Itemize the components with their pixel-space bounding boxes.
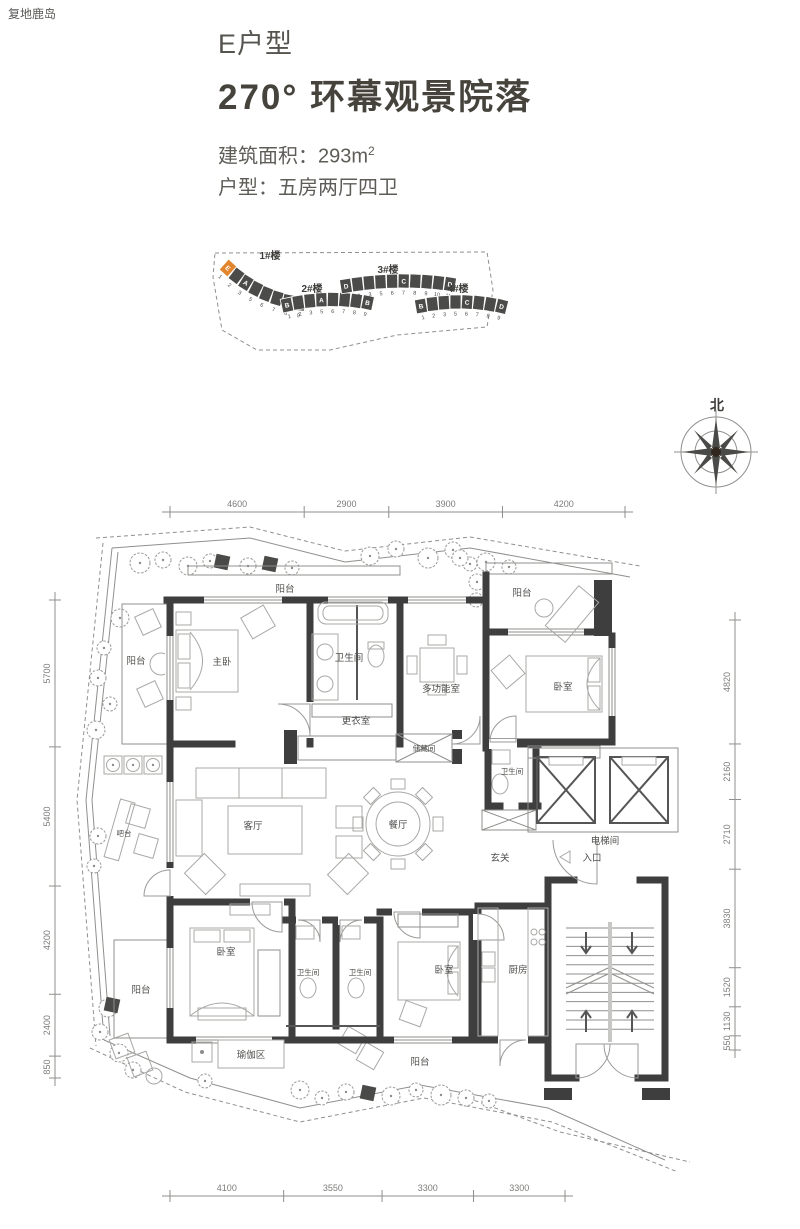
building-cell: 10 xyxy=(431,275,445,299)
cell-number: 1 xyxy=(287,314,291,321)
cell-letter: C xyxy=(464,299,469,306)
compass-rose xyxy=(674,410,758,494)
tree-icon xyxy=(482,1094,496,1108)
dim-label: 5700 xyxy=(42,663,52,683)
cell-number: 2 xyxy=(432,313,436,319)
cell-number: 6 xyxy=(391,291,394,297)
tree-icon xyxy=(92,1024,108,1040)
tree-icon xyxy=(198,1074,212,1088)
tree-icon xyxy=(315,1091,329,1105)
label-bath-b1: 卫生间 xyxy=(297,967,320,977)
dim-label: 3550 xyxy=(323,1183,343,1193)
building-cell: A5 xyxy=(316,293,328,316)
cell-number: 9 xyxy=(363,312,367,319)
cell-number: 5 xyxy=(379,291,382,297)
tree-icon xyxy=(111,609,129,627)
label-master-bedroom: 主卧 xyxy=(212,656,232,668)
label-living-room: 客厅 xyxy=(243,820,263,832)
label-dining-room: 餐厅 xyxy=(388,819,408,831)
cell-letter: C xyxy=(401,278,406,285)
building-cell: 7 xyxy=(471,295,485,319)
planter-icon xyxy=(124,756,142,774)
dimension-chain: 4100355033003300 xyxy=(162,1183,573,1202)
building-cell: C6 xyxy=(461,295,473,318)
tree-icon xyxy=(361,547,379,565)
label-balcony-bottom-left: 阳台 xyxy=(131,984,150,996)
cell-number: 7 xyxy=(271,307,276,314)
planter-dark-icon xyxy=(214,554,231,571)
building-cell: 6 xyxy=(386,274,397,297)
elevators xyxy=(528,748,678,832)
building-cell: 3 xyxy=(438,295,450,318)
building-cell: 2 xyxy=(426,296,440,320)
cell-number: 9 xyxy=(424,291,428,297)
label-elevator-hall: 电梯间 xyxy=(591,835,620,847)
building-cell: 5 xyxy=(450,295,461,318)
tree-icon xyxy=(90,670,106,686)
label-yoga-area: 瑜伽区 xyxy=(237,1049,266,1061)
planter-icon xyxy=(144,756,162,774)
planter-icon xyxy=(104,756,122,774)
outdoor-chair-icon xyxy=(134,834,159,859)
building-cell: C7 xyxy=(398,274,409,297)
cell-number: 7 xyxy=(402,290,405,296)
dimension-chain: 482021602710383015201130550 xyxy=(722,612,741,1058)
cell-number: 8 xyxy=(413,291,416,297)
cell-number: 5 xyxy=(320,309,323,315)
outdoor-chair-icon xyxy=(137,681,164,708)
dimension-chain: 4600290039004200 xyxy=(162,499,633,518)
cell-number: 7 xyxy=(475,312,479,318)
outdoor-chair-icon xyxy=(356,1042,383,1069)
dim-label: 5400 xyxy=(42,806,52,826)
label-storage-room: 储藏间 xyxy=(413,743,436,753)
tree-icon xyxy=(382,1087,400,1105)
dim-label: 3900 xyxy=(436,499,456,509)
dim-label: 4600 xyxy=(227,499,247,509)
cell-number: 8 xyxy=(486,313,490,319)
tree-icon xyxy=(285,561,299,575)
label-balcony-left: 阳台 xyxy=(126,655,145,667)
tree-icon xyxy=(431,1085,451,1105)
planter-dark-icon xyxy=(360,1085,377,1102)
label-bedroom-bottom-left: 卧室 xyxy=(216,946,235,958)
label-dressing-room: 更衣室 xyxy=(342,715,371,727)
tree-icon xyxy=(87,721,105,739)
tree-icon xyxy=(103,697,117,711)
label-bath-b2: 卫生间 xyxy=(349,967,372,977)
cell-number: 1 xyxy=(216,274,222,281)
dim-label: 3300 xyxy=(509,1183,529,1193)
tree-icon xyxy=(458,1090,474,1106)
floorplan-canvas: 1#楼E12A35678B92#楼B123A5678B93#楼D12356C78… xyxy=(0,0,800,1229)
entrance-arrow-icon xyxy=(560,851,570,863)
planter-dark-icon xyxy=(104,997,121,1014)
tree-icon xyxy=(90,828,106,844)
building-cell: 9 xyxy=(420,274,433,297)
outdoor-chair-icon xyxy=(135,609,162,636)
label-balcony-top-right: 阳台 xyxy=(512,587,531,599)
tree-icon xyxy=(502,560,516,574)
dim-label: 4820 xyxy=(722,672,732,692)
building-cell: 8 xyxy=(409,274,421,297)
dim-label: 2710 xyxy=(722,824,732,844)
cell-number: 3 xyxy=(309,310,313,316)
cell-number: 6 xyxy=(465,311,468,317)
site-plan: 1#楼E12A35678B92#楼B123A5678B93#楼D12356C78… xyxy=(213,249,509,350)
dim-label: 3300 xyxy=(418,1183,438,1193)
label-kitchen: 厨房 xyxy=(508,964,527,976)
compass: 北 xyxy=(674,397,758,494)
dim-label: 4200 xyxy=(42,930,52,950)
dimension-chain: 5700540042002400850 xyxy=(42,592,61,1086)
label-multi-room: 多功能室 xyxy=(422,683,460,695)
planter-dark-icon xyxy=(262,556,279,573)
building-name: 4#楼 xyxy=(447,282,468,295)
cell-number: 2 xyxy=(226,282,232,289)
dim-label: 2400 xyxy=(42,1015,52,1035)
tree-icon xyxy=(291,1081,309,1099)
dim-label: 850 xyxy=(42,1060,52,1075)
cell-number: 6 xyxy=(259,302,264,309)
staircase xyxy=(566,922,654,1042)
dim-label: 1520 xyxy=(722,977,732,997)
cell-number: 3 xyxy=(368,292,372,298)
cell-number: 2 xyxy=(298,312,302,318)
tree-icon xyxy=(155,552,171,568)
cell-number: 3 xyxy=(443,312,446,318)
label-entrance: 入口 xyxy=(582,853,601,864)
tree-icon xyxy=(338,1084,354,1100)
label-foyer: 玄关 xyxy=(490,852,510,864)
label-bedroom-top-right: 卧室 xyxy=(553,681,572,693)
dim-label: 4100 xyxy=(217,1183,237,1193)
tree-icon xyxy=(418,548,438,568)
dim-label: 2160 xyxy=(722,762,732,782)
label-bath-top: 卫生间 xyxy=(335,652,364,664)
north-label: 北 xyxy=(710,397,724,413)
dim-label: 4200 xyxy=(554,499,574,509)
dim-label: 2900 xyxy=(336,499,356,509)
dim-label: 3830 xyxy=(722,908,732,928)
building-name: 1#楼 xyxy=(259,249,280,262)
outdoor-chair-icon xyxy=(126,804,151,829)
tree-icon xyxy=(409,1083,423,1097)
building-cell: 5 xyxy=(375,275,387,298)
cell-number: 1 xyxy=(421,315,425,321)
cell-number: 5 xyxy=(247,297,252,304)
cell-letter: A xyxy=(319,297,324,304)
label-balcony-top: 阳台 xyxy=(275,583,294,595)
label-bedroom-bottom-mid: 卧室 xyxy=(434,964,453,976)
cell-number: 3 xyxy=(236,290,242,297)
tree-icon xyxy=(97,641,111,655)
label-bath-mid: 卫生间 xyxy=(501,766,524,776)
building-cell: 3 xyxy=(304,293,317,316)
tree-icon xyxy=(130,553,150,573)
cell-number: 5 xyxy=(454,311,457,317)
tree-icon xyxy=(388,541,404,557)
tree-icon xyxy=(110,1044,128,1062)
tree-icon xyxy=(452,550,468,566)
dim-label: 1130 xyxy=(722,1012,732,1031)
label-balcony-bottom: 阳台 xyxy=(410,1056,429,1068)
dim-label: 550 xyxy=(722,1035,732,1050)
cell-number: 7 xyxy=(342,309,346,315)
cell-number: 8 xyxy=(352,310,356,316)
tree-icon xyxy=(87,859,101,873)
cell-number: 9 xyxy=(496,315,500,322)
cell-number: 6 xyxy=(331,309,334,315)
label-bar-counter: 吧台 xyxy=(117,828,132,838)
building-cell: 6 xyxy=(327,292,339,315)
